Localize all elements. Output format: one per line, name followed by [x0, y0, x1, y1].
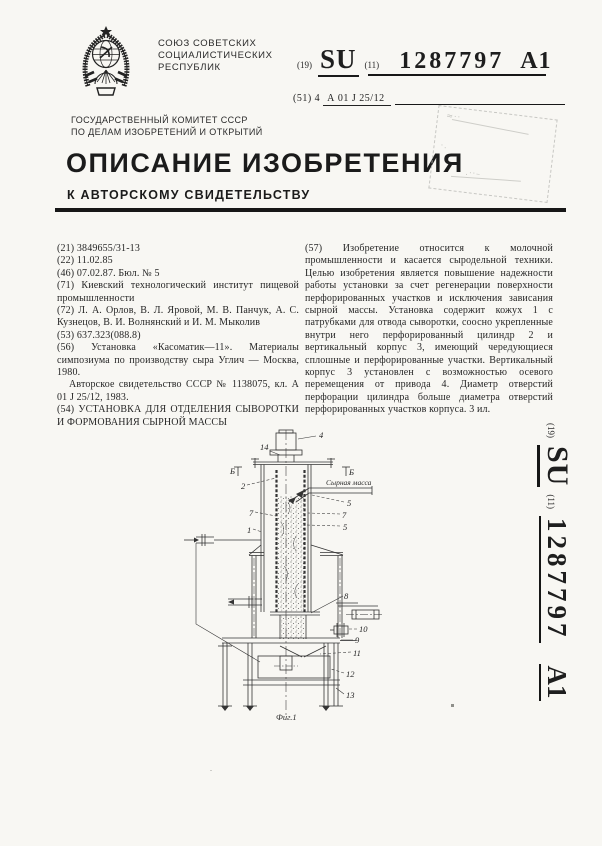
field-71: (71) Киевский технологический институт п… — [57, 280, 299, 305]
figure-label-9: 9 — [355, 635, 360, 645]
ipc-underline-ext — [395, 104, 565, 105]
biblio-column: (21) 3849655/31-13 (22) 11.02.85 (46) 07… — [57, 243, 299, 429]
figure-label-11: 11 — [353, 648, 361, 658]
sidebar-code-19: (19) — [546, 423, 556, 438]
sidebar-document-number: 1287797 — [539, 516, 572, 643]
committee-line-1: ГОСУДАРСТВЕННЫЙ КОМИТЕТ СССР — [71, 115, 263, 127]
field-46: (46) 07.02.87. Бюл. № 5 — [57, 268, 299, 280]
field-56-ref1: (56) Установка «Касоматик—11». Материалы… — [57, 342, 299, 379]
figure-label-13: 13 — [346, 690, 355, 700]
country-code: SU — [318, 44, 359, 77]
field-22: (22) 11.02.85 — [57, 255, 299, 267]
emblem-globe — [93, 41, 120, 68]
figure-label-1: 1 — [247, 525, 251, 535]
code-19: (19) — [297, 60, 312, 70]
field-56-ref2: Авторское свидетельство СССР № 1138075, … — [57, 379, 299, 404]
emblem-ribbon — [97, 88, 115, 95]
figure-label-14: 14 — [260, 442, 269, 452]
document-title: ОПИСАНИЕ ИЗОБРЕТЕНИЯ — [66, 148, 464, 179]
figure-label-7a: 7 — [249, 508, 254, 518]
code-11: (11) — [365, 60, 380, 70]
country-line-3: РЕСПУБЛИК — [158, 62, 273, 74]
cheese-mass-fill — [278, 496, 304, 612]
figure-label-2: 2 — [241, 481, 246, 491]
figure-label-12: 12 — [346, 669, 355, 679]
country-name: СОЮЗ СОВЕТСКИХ СОЦИАЛИСТИЧЕСКИХ РЕСПУБЛИ… — [158, 38, 273, 74]
kind-code: A1 — [520, 48, 551, 75]
ussr-emblem — [76, 24, 136, 100]
figure-fitting-10 — [330, 623, 348, 637]
document-number: 1287797 — [399, 48, 504, 75]
figure-cylinder-8 — [336, 603, 384, 619]
sidebar-country-code: SU — [537, 445, 574, 487]
figure-label-4: 4 — [319, 430, 324, 440]
scan-speck — [451, 704, 454, 707]
sidebar-anchor: (19) SU (11) 1287797 A1 — [574, 423, 575, 424]
scan-speck-3 — [540, 300, 542, 302]
figure-whey-pipe-lower — [228, 596, 262, 608]
figure-label-7b: 7 — [342, 510, 347, 520]
committee-line-2: ПО ДЕЛАМ ИЗОБРЕТЕНИЙ И ОТКРЫТИЙ — [71, 127, 263, 139]
ipc-class: А 01 J 25/12 — [323, 93, 390, 106]
figure-label-5b: 5 — [343, 522, 347, 532]
sidebar-publication-number: (19) SU (11) 1287797 A1 — [537, 423, 574, 424]
scan-speck-4 — [210, 770, 212, 771]
emblem-star — [100, 26, 112, 37]
figure-whey-pipe-upper — [184, 534, 261, 546]
header-divider — [55, 208, 566, 212]
ipc-row: (51) 4 А 01 J 25/12 — [293, 93, 391, 106]
sidebar-kind-code: A1 — [539, 664, 572, 701]
ink-stamp: ≈·· ·. .··– — [428, 105, 557, 203]
figure-label-10: 10 — [359, 624, 368, 634]
country-line-2: СОЦИАЛИСТИЧЕСКИХ — [158, 50, 273, 62]
figure-section-mark-left: Б — [229, 466, 235, 476]
field-72: (72) Л. А. Орлов, В. Л. Яровой, М. В. Па… — [57, 305, 299, 330]
field-53: (53) 637.323(088.8) — [57, 330, 299, 342]
committee-block: ГОСУДАРСТВЕННЫЙ КОМИТЕТ СССР ПО ДЕЛАМ ИЗ… — [71, 115, 263, 138]
field-57-abstract: (57) Изобретение относится к молочной пр… — [305, 243, 553, 417]
figure-label-5a: 5 — [347, 498, 351, 508]
number-underline — [368, 74, 546, 76]
ussr-emblem-drawing — [76, 24, 136, 100]
sidebar-code-11: (11) — [546, 494, 556, 509]
scan-speck-2 — [95, 392, 97, 393]
figure-label-8: 8 — [344, 591, 349, 601]
figure-caption: Фиг.1 — [276, 712, 297, 722]
patent-figure: 4 14 Б Б 2 7 1 5 7 5 8 10 9 11 12 13 — [150, 426, 470, 728]
figure-flow-annotation: Сырная масса — [326, 478, 372, 487]
stamp-mark-2: ·. — [440, 141, 448, 151]
country-line-1: СОЮЗ СОВЕТСКИХ — [158, 38, 273, 50]
patent-page: СОЮЗ СОВЕТСКИХ СОЦИАЛИСТИЧЕСКИХ РЕСПУБЛИ… — [0, 0, 602, 846]
figure-section-mark-right: Б — [348, 467, 354, 477]
publication-number-block: (19) SU (11) 1287797 A1 — [297, 44, 552, 77]
document-subtitle: К АВТОРСКОМУ СВИДЕТЕЛЬСТВУ — [67, 188, 310, 202]
field-21: (21) 3849655/31-13 — [57, 243, 299, 255]
abstract-column: (57) Изобретение относится к молочной пр… — [305, 243, 553, 417]
code-51: (51) 4 — [293, 93, 320, 104]
figure-legs — [218, 643, 343, 711]
figure-drawing: 4 14 Б Б 2 7 1 5 7 5 8 10 9 11 12 13 — [150, 426, 470, 728]
figure-drive-box — [258, 656, 330, 678]
